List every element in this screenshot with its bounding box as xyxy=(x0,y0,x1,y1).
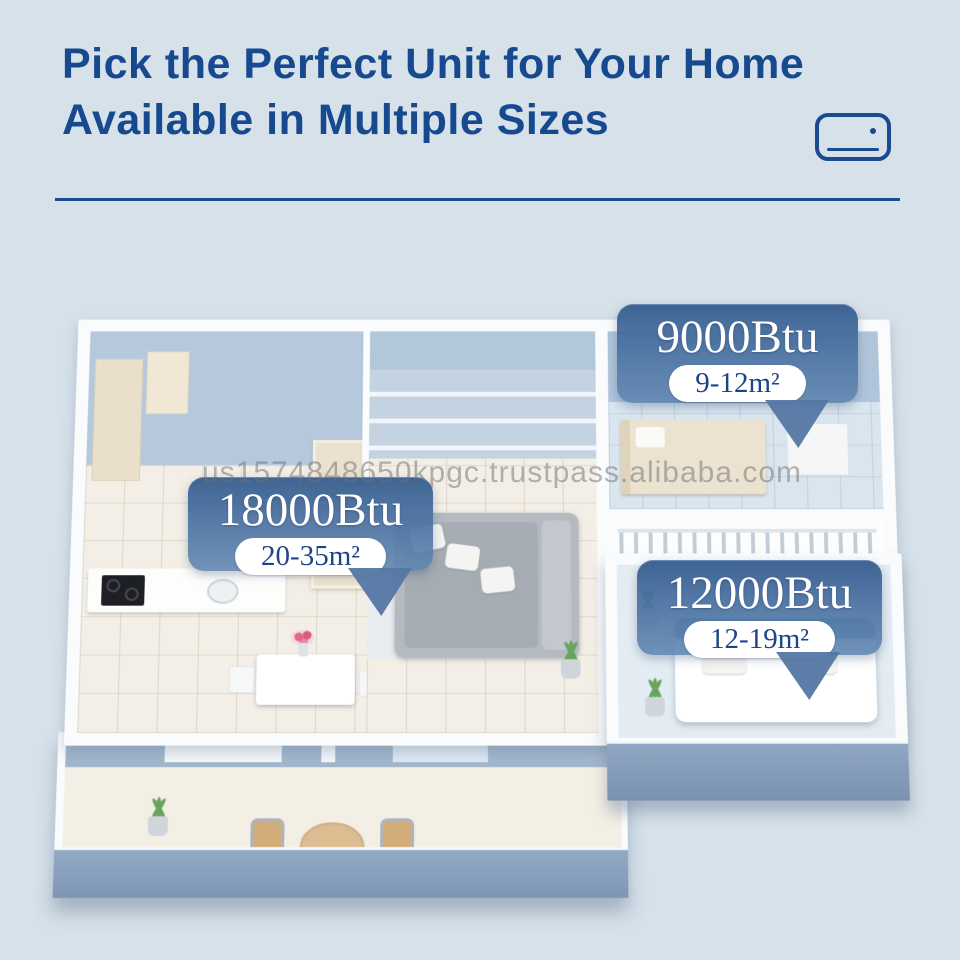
area-range-pill: 9-12m² xyxy=(669,365,805,402)
callout-small-bedroom: 9000Btu 9-12m² xyxy=(617,304,858,403)
master-bedroom-front-wall xyxy=(607,741,910,801)
btu-label: 9000Btu xyxy=(617,311,858,363)
ac-indicator-dot xyxy=(870,128,876,134)
callout-living-room: 18000Btu 20-35m² xyxy=(188,477,433,571)
kitchen-cabinet xyxy=(146,352,190,415)
dining-chair xyxy=(228,666,254,693)
dining-table xyxy=(256,655,355,705)
kitchen-counter xyxy=(87,569,286,613)
page-title-line2: Available in Multiple Sizes xyxy=(62,92,804,148)
callout-master-bedroom: 12000Btu 12-19m² xyxy=(637,560,882,655)
watermark-text: us1574848650kpgc.trustpass.alibaba.com xyxy=(202,456,802,490)
btu-label: 18000Btu xyxy=(188,484,433,536)
kitchen-cabinet xyxy=(91,359,143,481)
gas-stove xyxy=(101,575,145,605)
wall-shelf-unit xyxy=(366,370,599,459)
page-title: Pick the Perfect Unit for Your Home Avai… xyxy=(62,36,804,148)
balcony-floor xyxy=(62,767,622,850)
floor-plan-scene: 9000Btu 9-12m² 18000Btu 20-35m² 12000Btu… xyxy=(0,240,960,960)
page-background: Pick the Perfect Unit for Your Home Avai… xyxy=(0,0,960,960)
ac-vent-line xyxy=(827,148,879,151)
air-conditioner-icon xyxy=(815,113,891,161)
balcony-front-wall xyxy=(53,847,629,898)
kitchen-sink xyxy=(207,579,239,604)
title-divider xyxy=(55,198,900,201)
page-title-line1: Pick the Perfect Unit for Your Home xyxy=(62,36,804,92)
balcony-area xyxy=(53,732,629,898)
btu-label: 12000Btu xyxy=(637,567,882,619)
